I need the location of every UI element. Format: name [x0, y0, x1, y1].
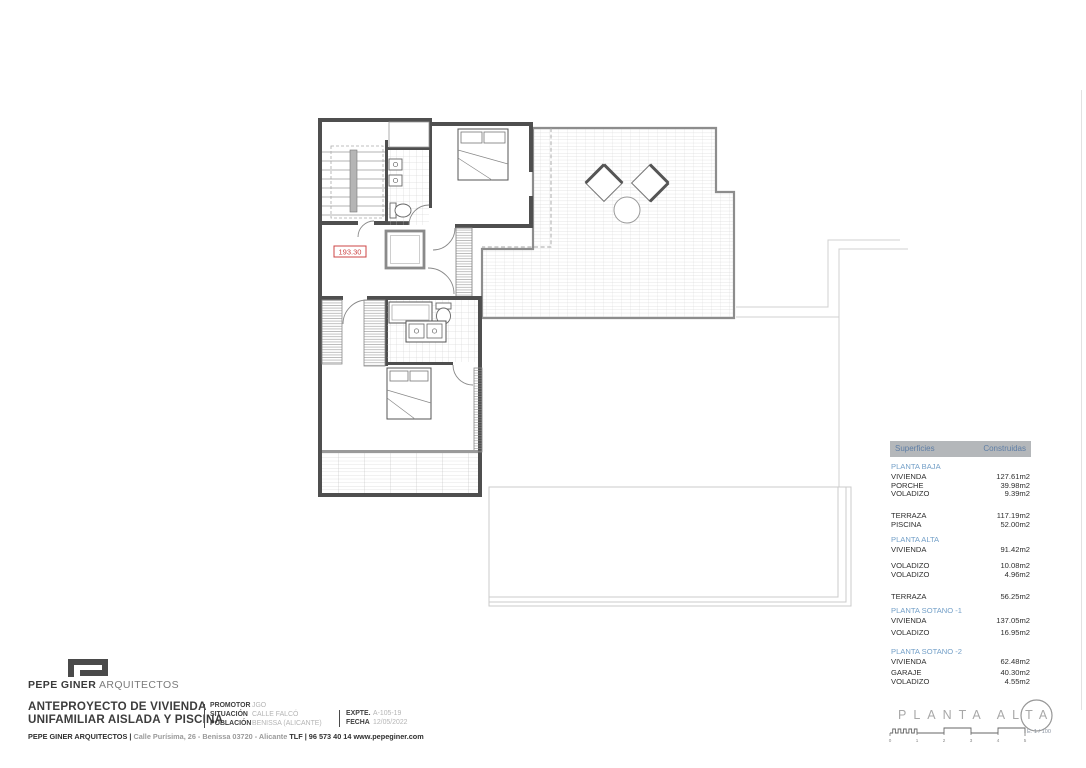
project-fields: PROMOTORJGO SITUACIÓNCALLE FALCÓ POBLACI…: [210, 701, 322, 728]
divider: [204, 704, 205, 728]
wardrobe: [364, 300, 385, 366]
table-row: VOLADIZO16.95m2: [890, 629, 1031, 638]
lower-module: [318, 296, 482, 497]
project-title: ANTEPROYECTO DE VIVIENDA UNIFAMILIAR AIS…: [28, 701, 223, 726]
surfaces-table: Superficies Construidas PLANTA BAJA VIVI…: [890, 441, 1031, 687]
field-row: FECHA12/05/2022: [346, 718, 408, 727]
expedient-fields: EXPTE.A-105-19 FECHA12/05/2022: [346, 709, 408, 727]
round-table: [614, 197, 640, 223]
svg-text:0: 0: [889, 738, 892, 743]
sheet-frame-line: [1081, 90, 1082, 710]
footer-contact-line: PEPE GINER ARQUITECTOS | Calle Purísima,…: [28, 732, 424, 741]
section-planta-sotano-1: PLANTA SOTANO -1 VIVIENDA137.05m2 VOLADI…: [890, 606, 1031, 637]
terrace: [482, 128, 734, 318]
col-superficies: Superficies: [895, 441, 935, 457]
scale-label: E: 1 / 100: [1027, 729, 1051, 735]
table-row: VOLADIZO9.39m2: [890, 490, 1031, 499]
bedroom-2: [387, 368, 431, 419]
svg-text:5: 5: [1024, 738, 1027, 743]
table-row: VOLADIZO4.96m2: [890, 571, 1031, 580]
bathroom-upper: [388, 122, 429, 225]
table-row: VIVIENDA91.42m2: [890, 546, 1031, 555]
section-title: PLANTA ALTA: [891, 535, 1030, 544]
pool-outline: [489, 487, 851, 606]
surfaces-table-header: Superficies Construidas: [890, 441, 1031, 457]
sink: [389, 175, 402, 186]
bedroom-1: [432, 122, 533, 250]
table-row: VIVIENDA62.48m2: [890, 658, 1031, 667]
field-row: POBLACIÓNBENISSA (ALICANTE): [210, 719, 322, 728]
sink: [389, 159, 402, 170]
section-title: PLANTA SOTANO -2: [891, 647, 1030, 656]
svg-text:193.30: 193.30: [339, 248, 362, 257]
section-planta-baja: PLANTA BAJA VIVIENDA127.61m2 PORCHE39.98…: [890, 462, 1031, 530]
table-row: VIVIENDA137.05m2: [890, 617, 1031, 626]
hall: 193.30: [334, 228, 472, 298]
svg-text:3: 3: [970, 738, 973, 743]
section-planta-alta: PLANTA ALTA VIVIENDA91.42m2 VOLADIZO10.0…: [890, 535, 1031, 602]
section-planta-sotano-2: PLANTA SOTANO -2 VIVIENDA62.48m2 GARAJE4…: [890, 647, 1031, 687]
col-construidas: Construidas: [983, 441, 1026, 457]
svg-text:1: 1: [916, 738, 919, 743]
elevation-label: 193.30: [334, 246, 366, 257]
shaft: [386, 231, 424, 268]
field-row: SITUACIÓNCALLE FALCÓ: [210, 710, 322, 719]
divider: [339, 710, 340, 727]
glazed-wall: [456, 228, 472, 298]
section-title: PLANTA SOTANO -1: [891, 606, 1030, 615]
section-title: PLANTA BAJA: [891, 462, 1030, 471]
wardrobe: [322, 300, 342, 364]
sink: [409, 324, 424, 338]
sheet: 193.30: [0, 0, 1086, 768]
balcony: [322, 453, 478, 493]
svg-text:4: 4: [997, 738, 1000, 743]
svg-text:2: 2: [943, 738, 946, 743]
sink: [427, 324, 442, 338]
field-row: PROMOTORJGO: [210, 701, 322, 710]
ground-floor-outline: [736, 240, 908, 487]
window-strip: [474, 368, 482, 452]
firm-name: PEPE GINER ARQUITECTOS: [28, 679, 179, 691]
table-row: VOLADIZO4.55m2: [890, 678, 1031, 687]
table-row: TERRAZA56.25m2: [890, 593, 1031, 602]
graphic-scale: 0 1 2 3 4 5: [886, 725, 1046, 745]
table-row: PISCINA52.00m2: [890, 521, 1031, 530]
field-row: EXPTE.A-105-19: [346, 709, 408, 718]
